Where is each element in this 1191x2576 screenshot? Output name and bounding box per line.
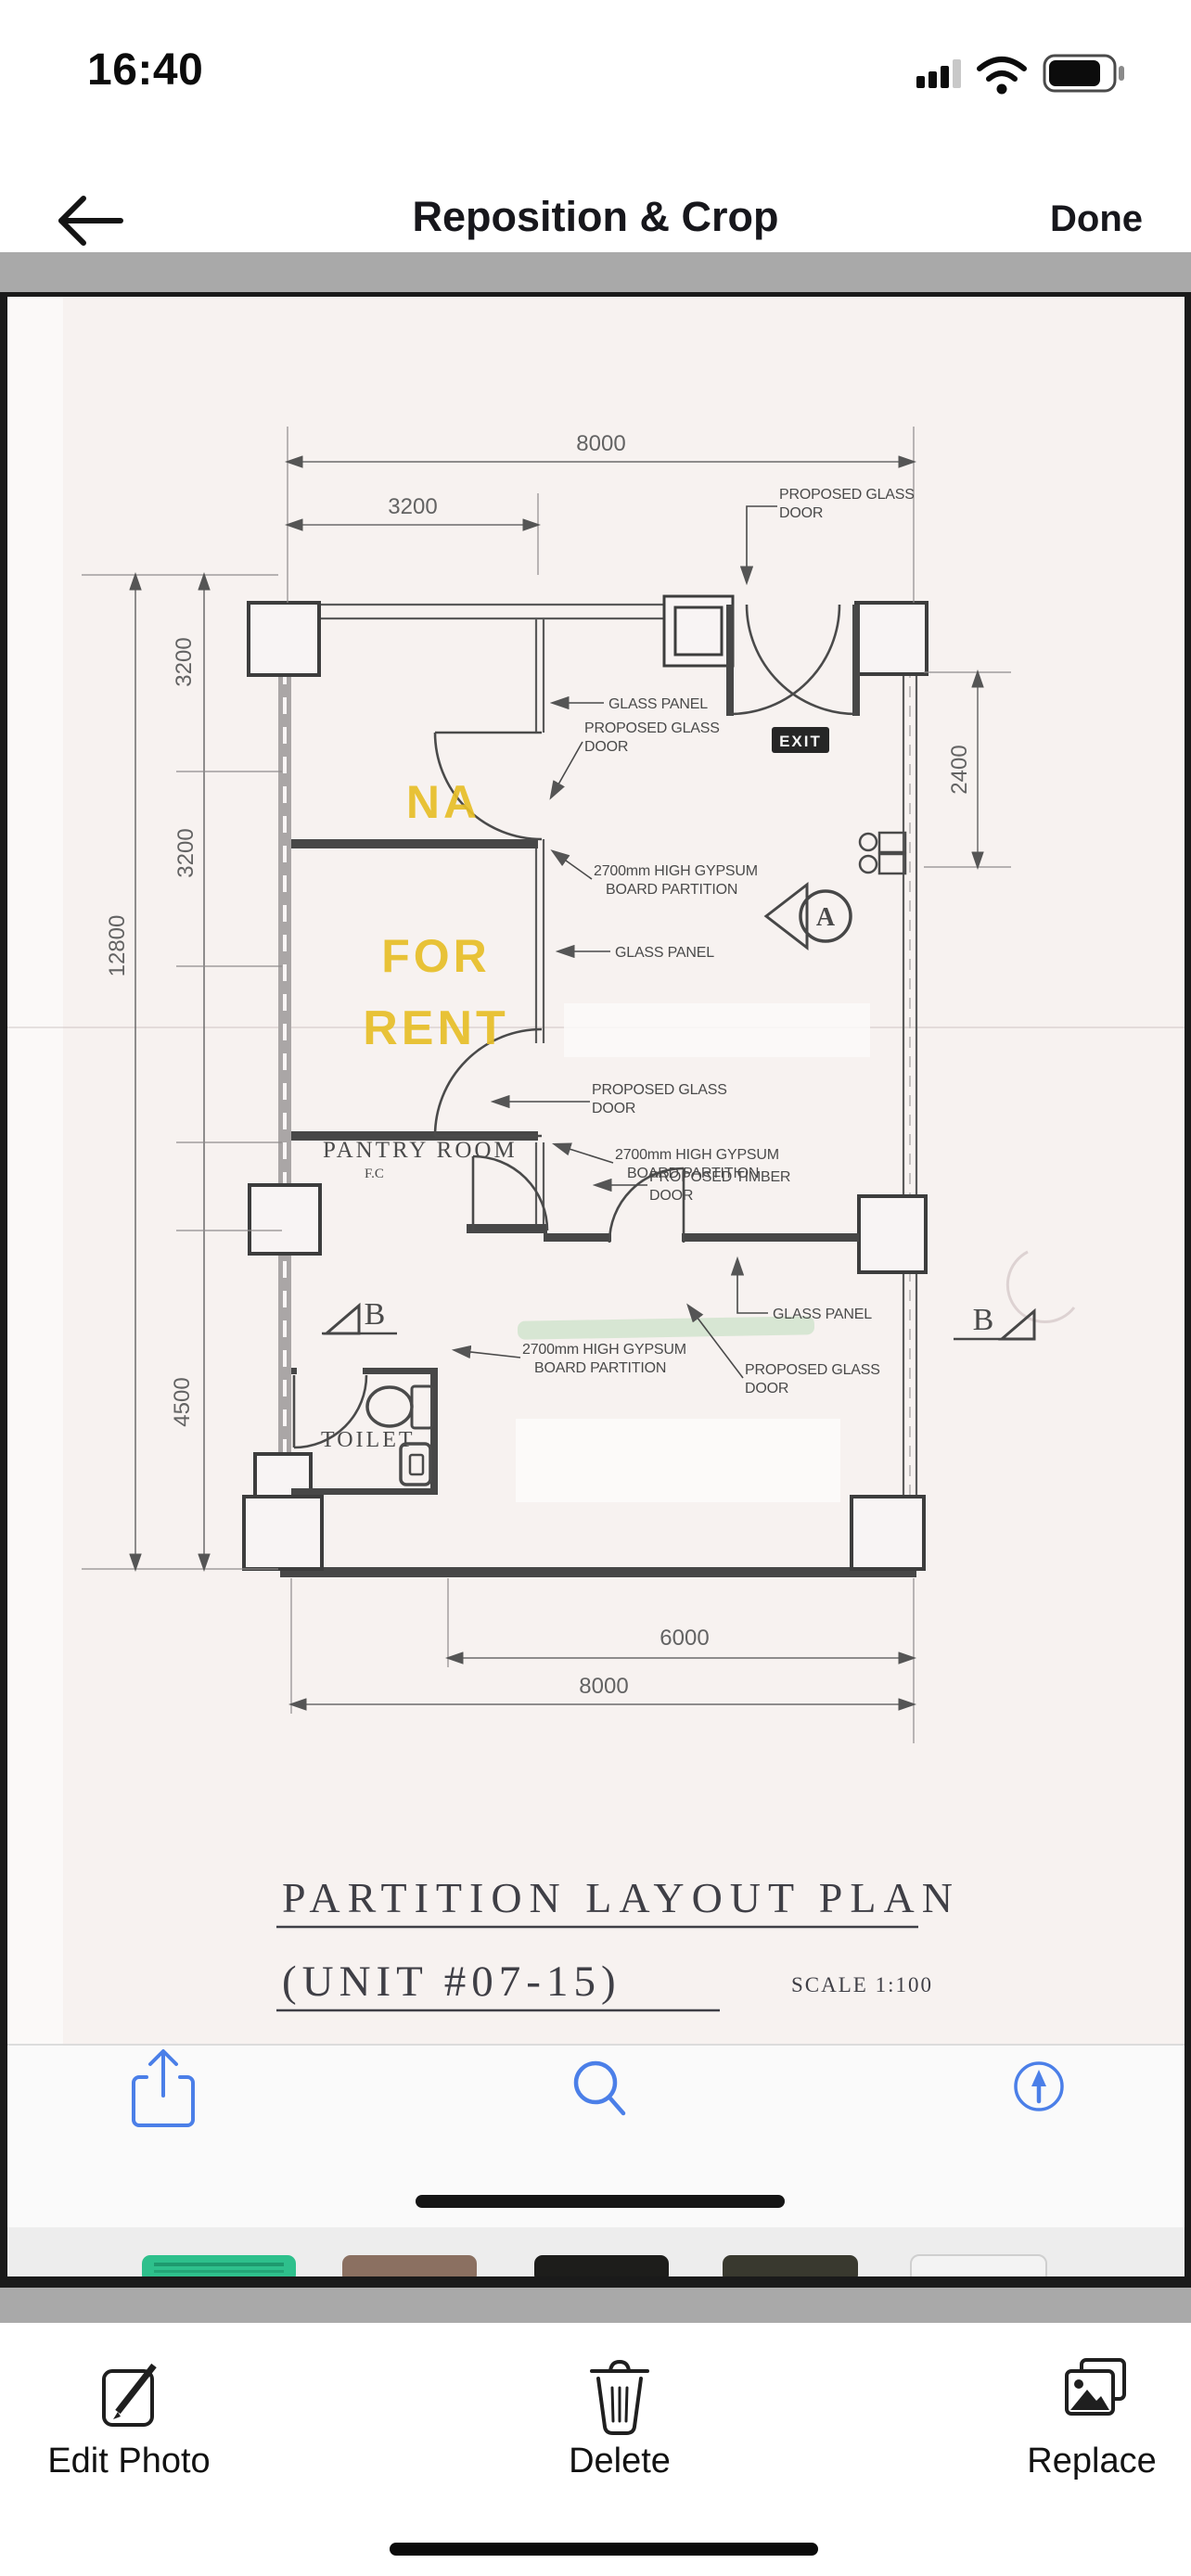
label-proposed-glass-door: PROPOSED GLASS bbox=[592, 1082, 727, 1098]
label-proposed-glass-door: DOOR bbox=[745, 1381, 788, 1396]
replace-button[interactable]: Replace bbox=[1027, 2442, 1156, 2481]
floor-plan-image: EXIT 8000 3200 2400 12800 3200 3200 4500 bbox=[7, 297, 1185, 2276]
section-marker-b: B bbox=[365, 1297, 386, 1332]
dim-top-left: 3200 bbox=[388, 494, 437, 519]
signal-icon bbox=[916, 59, 961, 88]
battery-icon bbox=[1044, 56, 1124, 91]
status-icons bbox=[909, 52, 1150, 98]
room-label-na: NA bbox=[406, 776, 480, 828]
wifi-icon bbox=[980, 59, 1024, 95]
thumbnail[interactable] bbox=[911, 2255, 1046, 2276]
status-time: 16:40 bbox=[87, 45, 203, 96]
dim-left-seg1: 3200 bbox=[172, 637, 197, 686]
thumbnail[interactable] bbox=[723, 2255, 858, 2276]
label-gypsum-partition: BOARD PARTITION bbox=[606, 882, 737, 898]
top-gray-strip bbox=[0, 252, 1191, 292]
section-marker-a: A bbox=[816, 903, 836, 932]
green-highlight bbox=[518, 1316, 814, 1340]
delete-icon[interactable] bbox=[592, 2362, 647, 2433]
thumbnail[interactable] bbox=[342, 2255, 477, 2276]
page-title: Reposition & Crop bbox=[0, 193, 1191, 241]
section-marker-b: B bbox=[973, 1303, 994, 1337]
label-glass-panel: GLASS PANEL bbox=[608, 696, 708, 712]
label-glass-panel: GLASS PANEL bbox=[773, 1307, 872, 1322]
room-label-for-rent: RENT bbox=[363, 1001, 509, 1055]
dim-bottom-overall: 8000 bbox=[579, 1674, 628, 1699]
edit-photo-icon[interactable] bbox=[104, 2366, 154, 2425]
dim-top-overall: 8000 bbox=[576, 431, 625, 456]
bottom-toolbar: Edit Photo Delete Replace bbox=[0, 2323, 1191, 2576]
label-proposed-glass-door: DOOR bbox=[592, 1101, 635, 1116]
paper-edge-light bbox=[7, 297, 63, 2045]
label-glass-panel: GLASS PANEL bbox=[615, 945, 714, 961]
dim-left-seg3: 4500 bbox=[170, 1377, 195, 1426]
label-proposed-glass-door: DOOR bbox=[584, 739, 628, 755]
done-button[interactable]: Done bbox=[1050, 198, 1143, 240]
label-gypsum-partition: BOARD PARTITION bbox=[534, 1360, 666, 1376]
label-gypsum-partition: 2700mm HIGH GYPSUM bbox=[522, 1342, 686, 1358]
bottom-gray-strip bbox=[0, 2288, 1191, 2323]
label-proposed-glass-door: DOOR bbox=[779, 505, 823, 521]
room-label-pantry-sub: F.C bbox=[365, 1167, 384, 1181]
label-proposed-glass-door: PROPOSED GLASS bbox=[584, 721, 720, 736]
label-proposed-glass-door: PROPOSED GLASS bbox=[779, 487, 915, 503]
dim-left-seg2: 3200 bbox=[173, 828, 198, 877]
exit-label: EXIT bbox=[779, 733, 822, 750]
label-gypsum-partition: 2700mm HIGH GYPSUM bbox=[615, 1147, 779, 1163]
photo-canvas[interactable]: EXIT 8000 3200 2400 12800 3200 3200 4500 bbox=[0, 292, 1191, 2288]
plan-subtitle: (UNIT #07-15) bbox=[282, 1958, 621, 2006]
wall-fixture bbox=[860, 833, 905, 874]
title-block: PARTITION LAYOUT PLAN (UNIT #07-15) SCAL… bbox=[276, 1874, 960, 2010]
dim-left-overall: 12800 bbox=[105, 915, 130, 977]
home-indicator[interactable] bbox=[390, 2543, 818, 2556]
plan-scale: SCALE 1:100 bbox=[791, 1973, 933, 1996]
room-label-toilet: TOILET bbox=[321, 1428, 416, 1452]
plan-title: PARTITION LAYOUT PLAN bbox=[282, 1874, 960, 1921]
thumbnail[interactable] bbox=[534, 2255, 669, 2276]
room-labels: NA FOR RENT PANTRY ROOM F.C TOILET bbox=[321, 776, 518, 1452]
whiteout-patch-2 bbox=[516, 1419, 840, 1502]
label-timber-door: DOOR bbox=[649, 1188, 693, 1204]
dim-bottom-inner: 6000 bbox=[660, 1626, 709, 1651]
label-timber-door: PROPOSED TIMBER bbox=[649, 1169, 790, 1185]
replace-icon[interactable] bbox=[1067, 2360, 1124, 2414]
room-label-pantry: PANTRY ROOM bbox=[323, 1138, 518, 1163]
room-label-for-rent: FOR bbox=[381, 930, 491, 982]
label-gypsum-partition: 2700mm HIGH GYPSUM bbox=[594, 863, 758, 879]
embedded-viewer-toolbar bbox=[7, 2045, 1185, 2276]
delete-button[interactable]: Delete bbox=[569, 2442, 671, 2481]
whiteout-patch bbox=[564, 1003, 870, 1057]
scan-artifact bbox=[1007, 1252, 1074, 1322]
embedded-home-indicator bbox=[416, 2195, 785, 2208]
edit-photo-button[interactable]: Edit Photo bbox=[47, 2442, 210, 2481]
dim-right: 2400 bbox=[947, 745, 972, 794]
exit-sign: EXIT bbox=[772, 727, 829, 753]
label-proposed-glass-door: PROPOSED GLASS bbox=[745, 1362, 880, 1378]
